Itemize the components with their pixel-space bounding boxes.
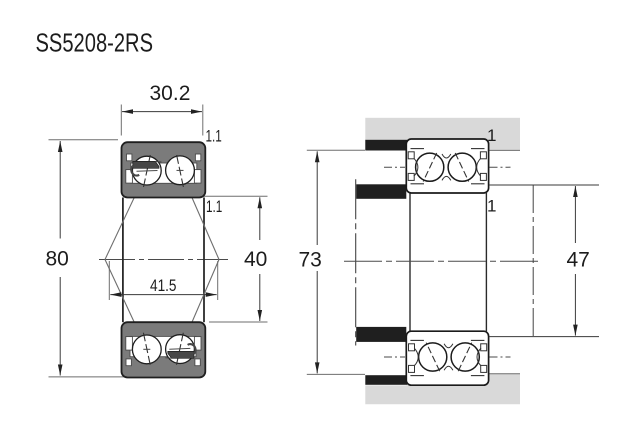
svg-text:1.1: 1.1: [206, 127, 222, 146]
svg-text:1: 1: [487, 126, 496, 145]
svg-text:80: 80: [46, 248, 69, 271]
svg-text:SS5208-2RS: SS5208-2RS: [36, 28, 154, 58]
svg-text:41.5: 41.5: [150, 276, 177, 295]
svg-text:73: 73: [299, 248, 322, 271]
svg-text:1.1: 1.1: [206, 197, 222, 216]
svg-text:30.2: 30.2: [150, 82, 191, 105]
svg-text:47: 47: [567, 249, 590, 272]
svg-text:40: 40: [244, 248, 267, 271]
svg-text:1: 1: [487, 197, 496, 216]
